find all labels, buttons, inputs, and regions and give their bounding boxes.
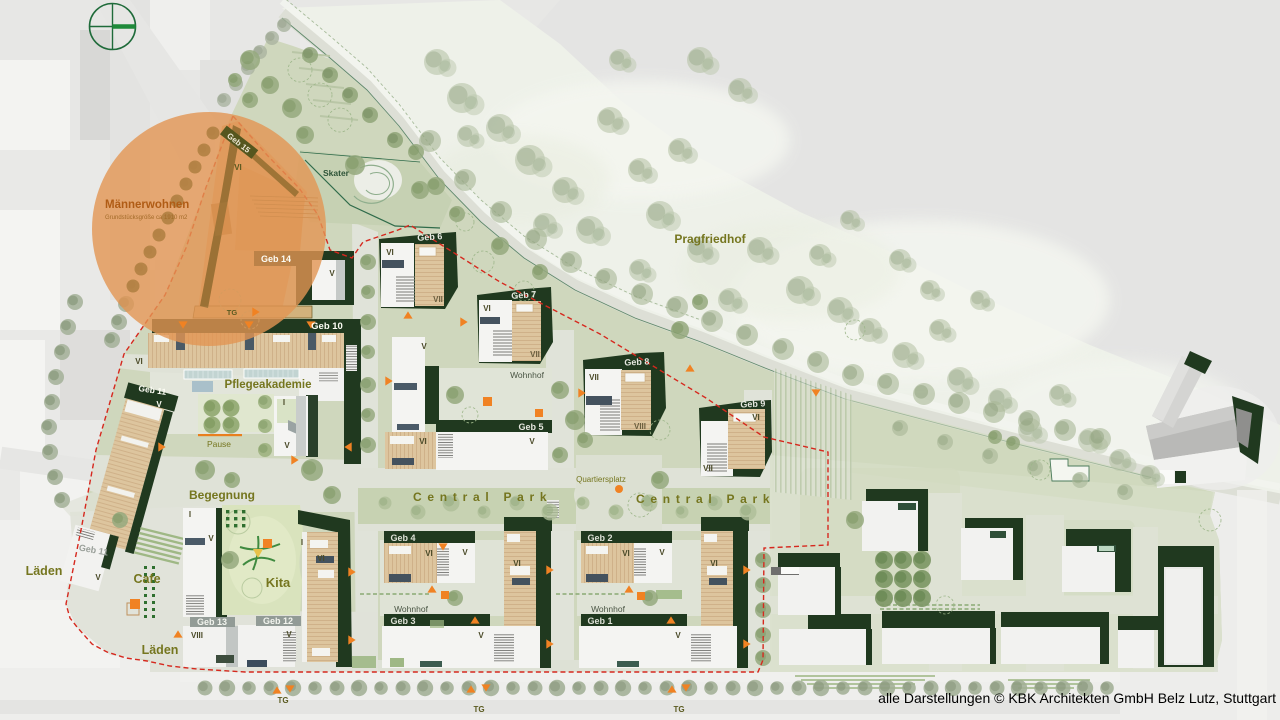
svg-text:Cafe: Cafe xyxy=(133,572,160,586)
svg-text:V: V xyxy=(156,400,162,409)
svg-text:Grundstücksgröße ca 1910 m2: Grundstücksgröße ca 1910 m2 xyxy=(105,215,188,221)
svg-text:VIII: VIII xyxy=(634,422,646,431)
svg-text:Läden: Läden xyxy=(26,564,63,578)
svg-text:Geb 4: Geb 4 xyxy=(390,533,415,543)
svg-text:VII: VII xyxy=(433,295,443,304)
svg-text:Läden: Läden xyxy=(142,643,179,657)
svg-text:I: I xyxy=(283,398,285,407)
svg-text:VI: VI xyxy=(234,163,242,172)
svg-text:Pflegeakademie: Pflegeakademie xyxy=(225,379,312,391)
svg-text:VII: VII xyxy=(530,350,540,359)
svg-text:Geb 1: Geb 1 xyxy=(587,616,612,626)
svg-text:Geb 2: Geb 2 xyxy=(587,533,612,543)
svg-text:Pause: Pause xyxy=(207,439,231,449)
svg-text:Kita: Kita xyxy=(266,575,291,590)
svg-text:Geb 7: Geb 7 xyxy=(511,289,537,301)
svg-text:VI: VI xyxy=(622,549,630,558)
svg-text:Wohnhof: Wohnhof xyxy=(510,370,545,380)
svg-text:V: V xyxy=(208,534,214,543)
svg-text:I: I xyxy=(301,538,303,547)
svg-text:VI: VI xyxy=(483,304,491,313)
svg-text:V: V xyxy=(329,269,335,278)
svg-text:VI: VI xyxy=(419,437,427,446)
svg-text:alle Darstellungen © KBK Archi: alle Darstellungen © KBK Architekten Gmb… xyxy=(878,690,1276,706)
svg-text:Begegnung: Begegnung xyxy=(189,488,255,502)
svg-text:VI: VI xyxy=(317,554,325,563)
svg-text:VI: VI xyxy=(513,559,521,568)
svg-text:Geb 8: Geb 8 xyxy=(624,356,650,367)
svg-text:C e n t r a l P a r k: C e n t r a l P a r k xyxy=(636,492,771,506)
svg-text:TG: TG xyxy=(473,705,484,714)
svg-text:Geb 13: Geb 13 xyxy=(197,617,227,627)
svg-text:I: I xyxy=(189,510,191,519)
svg-text:TG: TG xyxy=(227,308,238,317)
svg-text:VI: VI xyxy=(386,248,394,257)
svg-text:VI: VI xyxy=(135,357,143,366)
svg-text:Geb 12: Geb 12 xyxy=(263,616,293,626)
svg-text:Geb 6: Geb 6 xyxy=(417,231,443,243)
svg-text:C e n t r a l P a r k: C e n t r a l P a r k xyxy=(413,490,548,504)
svg-text:V: V xyxy=(478,631,484,640)
svg-text:Geb 9: Geb 9 xyxy=(740,398,766,409)
svg-text:V: V xyxy=(659,548,665,557)
svg-text:Wohnhof: Wohnhof xyxy=(591,604,626,614)
svg-text:V: V xyxy=(286,630,292,639)
svg-text:V: V xyxy=(421,342,427,351)
svg-text:V: V xyxy=(675,631,681,640)
svg-text:V: V xyxy=(462,548,468,557)
svg-text:V: V xyxy=(529,437,535,446)
svg-text:Skater: Skater xyxy=(323,168,350,178)
svg-text:TG: TG xyxy=(277,696,288,705)
svg-text:Wohnhof: Wohnhof xyxy=(394,604,429,614)
svg-text:VI: VI xyxy=(425,549,433,558)
svg-text:Pragfriedhof: Pragfriedhof xyxy=(674,232,746,246)
svg-text:VI: VI xyxy=(752,413,760,422)
svg-text:V: V xyxy=(284,441,290,450)
svg-text:Geb 10: Geb 10 xyxy=(311,321,343,332)
svg-text:V: V xyxy=(95,573,101,582)
svg-text:TG: TG xyxy=(673,705,684,714)
svg-text:VI: VI xyxy=(710,559,718,568)
svg-text:VIII: VIII xyxy=(191,631,203,640)
svg-text:VII: VII xyxy=(589,373,599,382)
svg-text:Geb 3: Geb 3 xyxy=(390,616,415,626)
svg-text:Männerwohnen: Männerwohnen xyxy=(105,199,189,211)
svg-text:Geb 5: Geb 5 xyxy=(518,422,543,432)
svg-text:VII: VII xyxy=(703,464,713,473)
svg-text:Quartiersplatz: Quartiersplatz xyxy=(576,475,626,484)
svg-text:Geb 14: Geb 14 xyxy=(261,254,291,264)
